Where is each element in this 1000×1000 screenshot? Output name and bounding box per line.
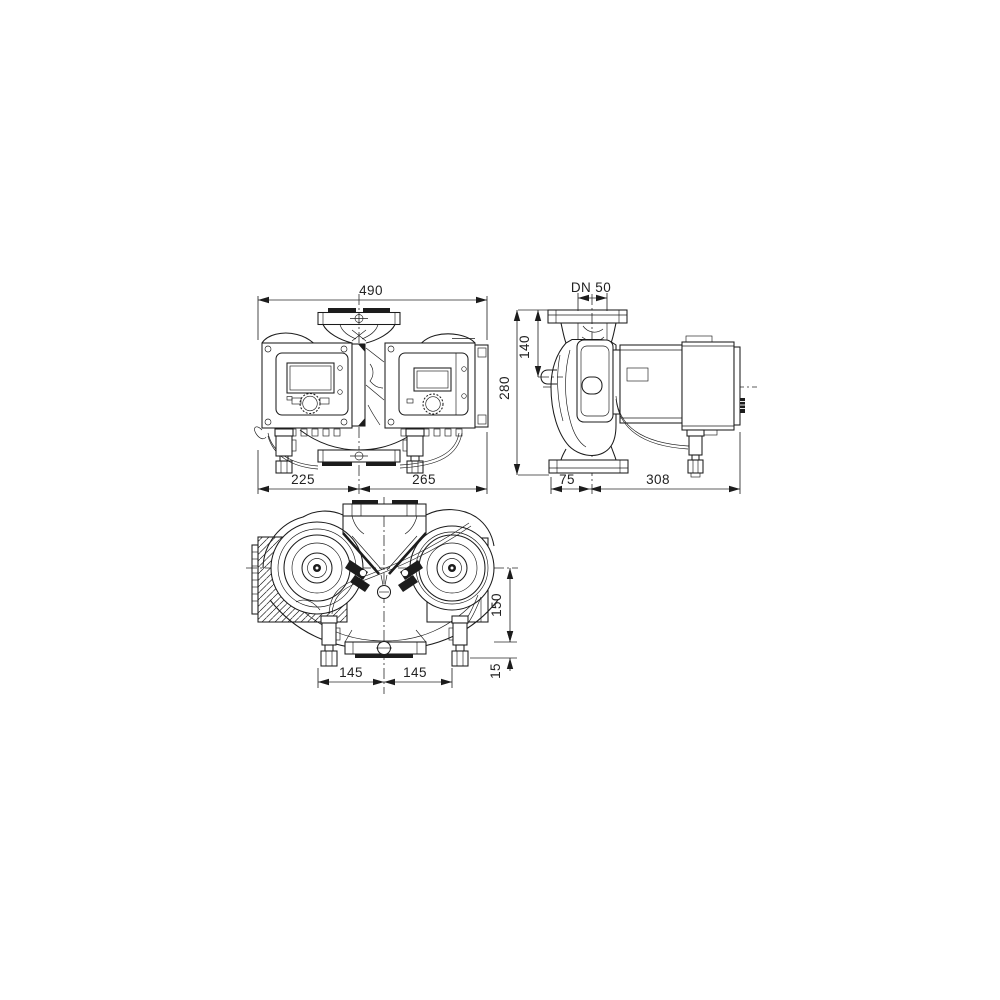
top-plug-right	[449, 616, 468, 666]
dim-front-left: 225	[291, 472, 315, 487]
side-view: DN 50 140 280 75 308	[497, 280, 757, 494]
front-view: 490 225 265	[255, 283, 488, 494]
dim-front-total-width: 490	[359, 283, 383, 298]
dim-side-front-depth: 75	[559, 472, 575, 487]
side-electronics-module	[682, 336, 745, 435]
dim-top-foot-offset: 15	[488, 663, 503, 679]
dim-top-pitch-right: 145	[403, 665, 427, 680]
top-bottom-flange	[345, 630, 426, 658]
top-plug-left	[321, 616, 340, 666]
dim-side-back-depth: 308	[646, 472, 670, 487]
side-stator	[620, 345, 682, 423]
dim-side-total-height: 280	[497, 376, 512, 400]
dim-side-nominal: DN 50	[571, 280, 611, 295]
front-neck-casting	[262, 325, 475, 344]
control-module-right	[385, 343, 488, 428]
control-module-left	[262, 343, 365, 428]
top-view: 150 15 145 145	[246, 497, 518, 694]
front-center-column	[366, 348, 384, 425]
dim-front-right: 265	[412, 472, 436, 487]
dim-side-flange-to-axis: 140	[517, 335, 532, 359]
front-plug-right	[403, 429, 424, 473]
side-plug	[687, 430, 704, 477]
front-plug-left	[275, 429, 296, 473]
dim-top-pitch-left: 145	[339, 665, 363, 680]
terminal-connector	[740, 398, 745, 413]
white-canvas: 490 225 265	[0, 0, 1000, 1000]
side-motor-flange	[577, 340, 620, 422]
dim-top-axis-offset: 150	[489, 593, 504, 617]
dimensional-drawing: 490 225 265	[0, 0, 1000, 1000]
top-port-flange	[343, 500, 426, 534]
